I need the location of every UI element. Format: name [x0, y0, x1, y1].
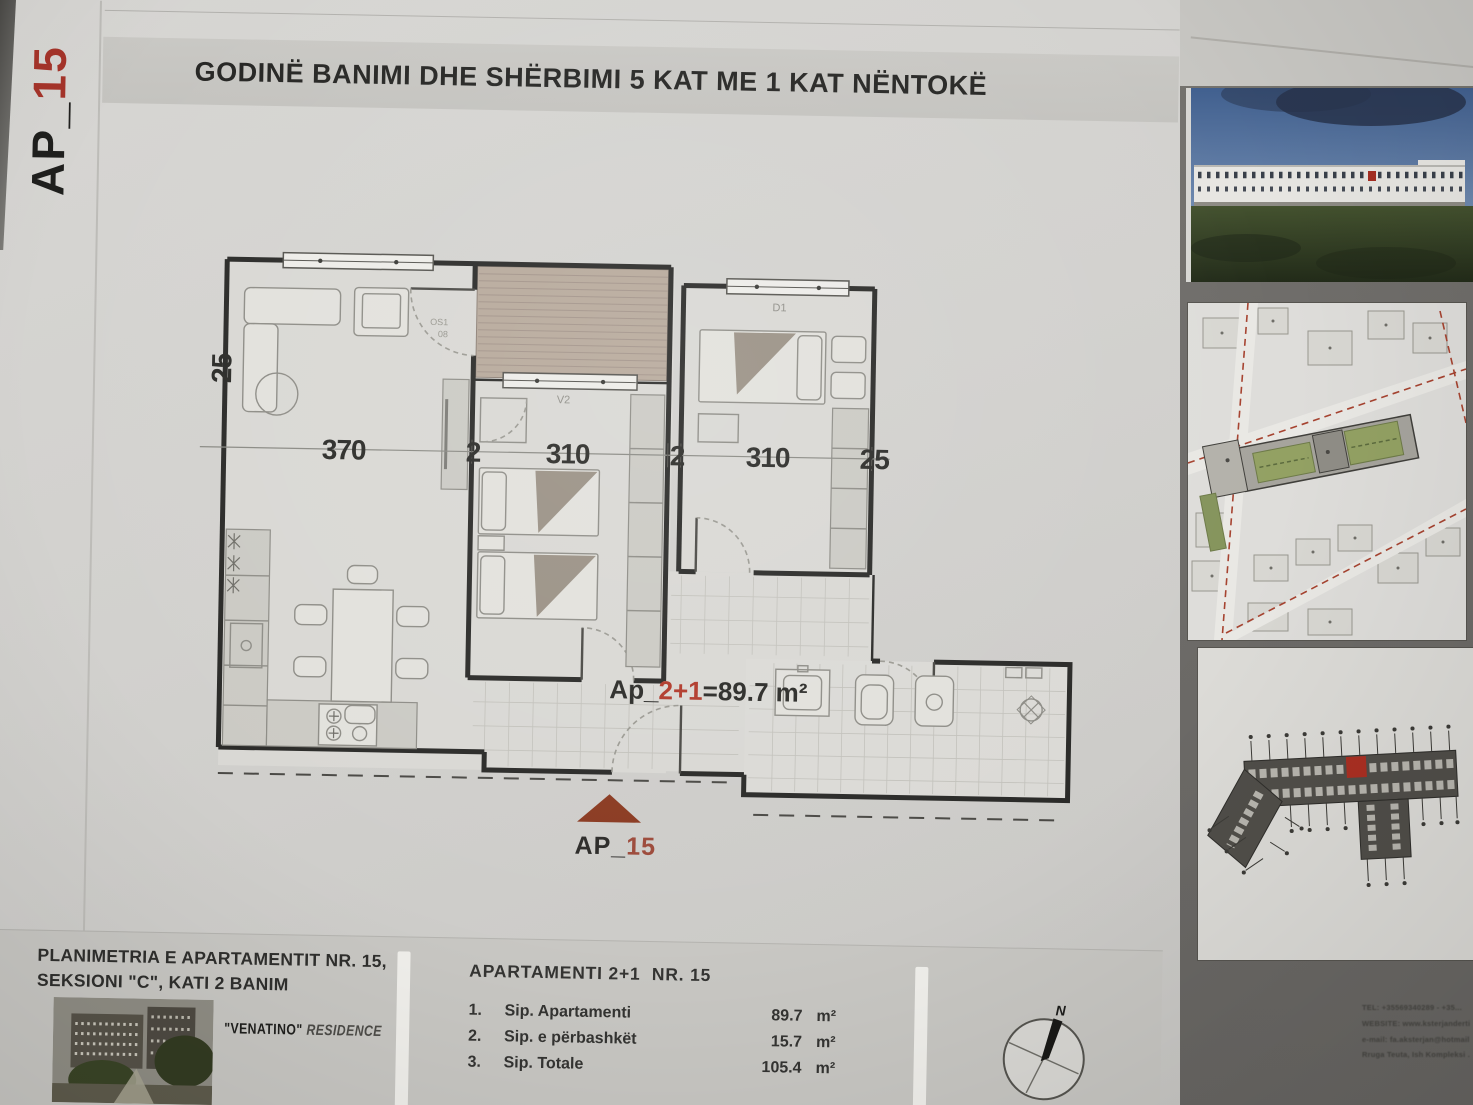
sheet-content: AP_15 GODINË BANIMI DHE SHËRBIMI 5 KAT M…	[0, 0, 1180, 1105]
residence-thumbnail-photo	[52, 997, 214, 1105]
floor-plan-drawing: 25 370 2 310 2 310 25 V2 D1 OS1 08 Ap_2+…	[176, 224, 1100, 877]
tag-os1: OS1	[430, 317, 448, 327]
photographed-plan-sheet: AP_15 GODINË BANIMI DHE SHËRBIMI 5 KAT M…	[0, 0, 1473, 1105]
building-photo	[1186, 88, 1473, 282]
row-value: 105.4	[733, 1055, 801, 1082]
dim-living: 370	[322, 434, 367, 466]
row-value: 15.7	[734, 1029, 802, 1056]
apartment-summary: APARTAMENTI 2+1 NR. 15 1.Sip. Apartament…	[467, 961, 843, 1083]
marker-triangle-icon	[577, 794, 642, 823]
row-unit: m²	[802, 1030, 842, 1057]
dim-bedroom2: 310	[745, 442, 790, 474]
residence-suffix-text: RESIDENCE	[302, 1022, 382, 1040]
contact-email: e-mail: fa.aksterjan@hotmail...	[1362, 1032, 1470, 1048]
panel-top-strip	[1180, 0, 1473, 86]
side-panel: TEL: +35569340289 - +35... WEBSITE: www.…	[1180, 0, 1473, 1105]
row-unit: m²	[801, 1056, 841, 1083]
title-band: GODINË BANIMI DHE SHËRBIMI 5 KAT ME 1 KA…	[102, 37, 1179, 123]
dim-wall-left: 25	[206, 353, 238, 383]
tag-os: 08	[438, 329, 448, 339]
key-plan-image	[1198, 648, 1473, 960]
contact-address: Rruga Teuta, Ish Kompleksi ...	[1362, 1047, 1470, 1063]
residence-name: "VENATINO" RESIDENCE	[224, 1020, 382, 1040]
compass-north-label: N	[1056, 1002, 1067, 1018]
terrace	[476, 266, 669, 380]
corner-label-number: 15	[23, 45, 76, 101]
row-number: 1.	[468, 998, 504, 1025]
dim-bedroom1: 310	[545, 438, 590, 470]
contact-tel: TEL: +35569340289 - +35...	[1362, 1000, 1470, 1016]
tag-v2: V2	[557, 394, 571, 406]
contact-info: TEL: +35569340289 - +35... WEBSITE: www.…	[1362, 1000, 1470, 1063]
highlighted-unit	[1346, 756, 1367, 778]
plan-sheet: AP_15 GODINË BANIMI DHE SHËRBIMI 5 KAT M…	[0, 0, 1180, 1105]
apartment-area-table: 1.Sip. Apartamenti89.7m² 2.Sip. e përbas…	[467, 998, 842, 1083]
row-number: 2.	[468, 1024, 504, 1051]
north-compass-icon: N	[988, 998, 1100, 1105]
sheet-title: GODINË BANIMI DHE SHËRBIMI 5 KAT ME 1 KA…	[194, 56, 987, 102]
titleblock-divider-2	[913, 967, 929, 1105]
site-plan-image	[1188, 303, 1466, 640]
living-window	[283, 253, 433, 271]
row-unit: m²	[802, 1004, 842, 1031]
dim-wall-right: 25	[859, 444, 889, 476]
sheet-top-edge	[105, 10, 1180, 31]
row-number: 3.	[467, 1050, 503, 1077]
apartment-heading: APARTAMENTI 2+1 NR. 15	[469, 961, 843, 989]
tag-d1: D1	[772, 302, 786, 314]
sheet-corner-label: AP_15	[20, 45, 77, 197]
titleblock-divider-1	[395, 951, 411, 1105]
row-label: Sip. Totale	[503, 1050, 733, 1080]
apartment-marker: AP_15	[574, 794, 657, 861]
title-block: PLANIMETRIA E APARTAMENTIT NR. 15, SEKSI…	[0, 929, 1163, 1105]
marker-label: AP_15	[574, 832, 656, 861]
table-row: 3.Sip. Totale105.4m²	[467, 1050, 841, 1083]
corner-label-prefix: AP_	[21, 100, 75, 196]
dim-wall-b: 2	[669, 440, 685, 471]
dim-wall-a: 2	[466, 437, 482, 468]
row-value: 89.7	[734, 1003, 802, 1030]
sheet-margin-line	[83, 1, 102, 936]
contact-website: WEBSITE: www.ksterjanderti...	[1362, 1016, 1470, 1032]
apartment-area-label: Ap_2+1=89.7 m²	[609, 674, 808, 708]
residence-name-text: "VENATINO"	[224, 1020, 303, 1038]
plan-caption: PLANIMETRIA E APARTAMENTIT NR. 15, SEKSI…	[37, 943, 387, 1000]
bedroom2-window	[727, 279, 849, 296]
